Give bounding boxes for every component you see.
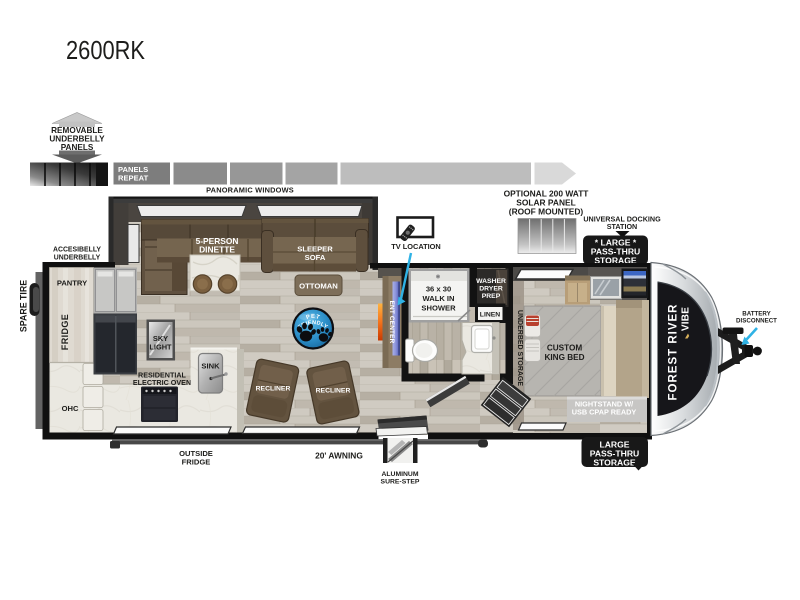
svg-text:WALK IN: WALK IN	[422, 294, 454, 303]
svg-text:OHC: OHC	[62, 404, 79, 413]
svg-text:SHOWER: SHOWER	[421, 304, 456, 313]
svg-text:FOREST RIVER: FOREST RIVER	[668, 304, 680, 401]
svg-text:FRIDGE: FRIDGE	[60, 314, 70, 350]
svg-text:UNDERBED STORAGE: UNDERBED STORAGE	[516, 310, 523, 386]
svg-text:LINEN: LINEN	[480, 312, 500, 319]
svg-text:OTTOMAN: OTTOMAN	[299, 282, 338, 291]
svg-text:FRIDGE: FRIDGE	[182, 458, 211, 467]
svg-text:TV LOCATION: TV LOCATION	[391, 242, 441, 251]
svg-text:WASHER: WASHER	[476, 278, 506, 285]
svg-text:DISCONNECT: DISCONNECT	[736, 318, 777, 325]
svg-text:BATTERY: BATTERY	[742, 311, 771, 318]
svg-text:STORAGE: STORAGE	[593, 458, 636, 468]
svg-text:PREP: PREP	[482, 293, 501, 300]
svg-text:RECLINER: RECLINER	[316, 388, 351, 395]
svg-text:ELECTRIC OVEN: ELECTRIC OVEN	[133, 378, 191, 387]
svg-text:36 x 30: 36 x 30	[426, 285, 451, 294]
svg-text:USB CPAP READY: USB CPAP READY	[572, 408, 637, 417]
svg-text:(ROOF MOUNTED): (ROOF MOUNTED)	[509, 207, 584, 217]
svg-text:STATION: STATION	[607, 222, 637, 231]
svg-text:ALUMINUM: ALUMINUM	[382, 471, 419, 478]
svg-text:RECLINER: RECLINER	[256, 386, 291, 393]
svg-text:KING BED: KING BED	[544, 353, 584, 362]
svg-text:PANORAMIC WINDOWS: PANORAMIC WINDOWS	[206, 186, 294, 195]
svg-text:DRYER: DRYER	[479, 286, 503, 293]
svg-text:ACCESIBELLY: ACCESIBELLY	[53, 247, 101, 254]
svg-text:CUSTOM: CUSTOM	[547, 344, 583, 353]
svg-text:LIGHT: LIGHT	[149, 343, 172, 352]
svg-text:VIBE: VIBE	[681, 307, 692, 331]
svg-text:REPEAT: REPEAT	[118, 174, 149, 183]
svg-text:2600RK: 2600RK	[66, 35, 146, 65]
svg-text:DINETTE: DINETTE	[199, 245, 235, 255]
svg-text:SURE-STEP: SURE-STEP	[381, 479, 420, 486]
svg-text:SINK: SINK	[201, 362, 220, 371]
svg-text:20' AWNING: 20' AWNING	[315, 451, 363, 461]
svg-text:SOFA: SOFA	[305, 253, 326, 262]
svg-text:ENT CENTER: ENT CENTER	[388, 301, 395, 344]
svg-text:SPARE TIRE: SPARE TIRE	[19, 280, 29, 332]
svg-text:PANTRY: PANTRY	[57, 279, 87, 288]
svg-text:UNDERBELLY: UNDERBELLY	[54, 255, 101, 262]
